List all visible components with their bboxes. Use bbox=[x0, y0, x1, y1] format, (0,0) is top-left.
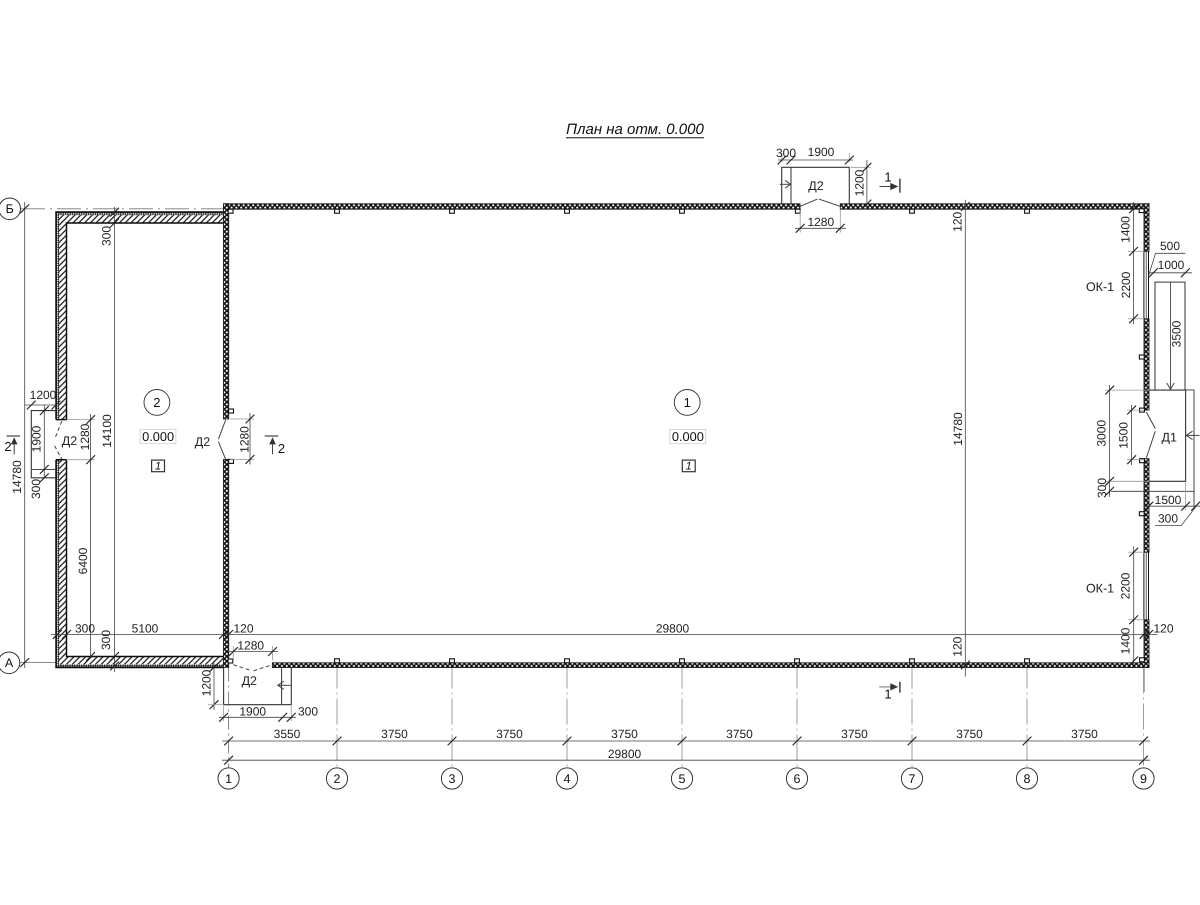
svg-text:120: 120 bbox=[1153, 621, 1173, 635]
svg-text:ОК-1: ОК-1 bbox=[1086, 280, 1114, 294]
svg-text:Д2: Д2 bbox=[195, 435, 210, 449]
svg-text:1000: 1000 bbox=[1158, 258, 1185, 272]
svg-text:0.000: 0.000 bbox=[142, 429, 174, 444]
svg-text:120: 120 bbox=[233, 621, 253, 635]
svg-text:3: 3 bbox=[449, 772, 456, 786]
svg-text:5100: 5100 bbox=[132, 621, 159, 635]
svg-text:1: 1 bbox=[225, 772, 232, 786]
svg-text:Д1: Д1 bbox=[1161, 431, 1176, 445]
svg-text:120: 120 bbox=[951, 636, 965, 656]
svg-text:8: 8 bbox=[1024, 772, 1031, 786]
svg-text:0.000: 0.000 bbox=[672, 429, 704, 444]
svg-text:3750: 3750 bbox=[496, 727, 523, 741]
svg-text:500: 500 bbox=[1160, 239, 1180, 253]
svg-text:1: 1 bbox=[884, 170, 891, 185]
svg-text:14780: 14780 bbox=[951, 412, 965, 446]
svg-text:3750: 3750 bbox=[956, 727, 983, 741]
svg-text:1280: 1280 bbox=[237, 639, 264, 653]
svg-text:14100: 14100 bbox=[100, 414, 114, 448]
svg-text:5: 5 bbox=[679, 772, 686, 786]
svg-text:29800: 29800 bbox=[608, 747, 642, 761]
svg-text:6400: 6400 bbox=[76, 547, 90, 574]
svg-text:2: 2 bbox=[334, 772, 341, 786]
svg-text:1280: 1280 bbox=[807, 215, 834, 229]
svg-text:300: 300 bbox=[99, 630, 113, 650]
svg-text:2200: 2200 bbox=[1119, 271, 1133, 298]
svg-text:1900: 1900 bbox=[808, 145, 835, 159]
svg-text:300: 300 bbox=[75, 621, 95, 635]
svg-text:1400: 1400 bbox=[1119, 216, 1133, 243]
svg-text:300: 300 bbox=[298, 705, 318, 719]
svg-text:1280: 1280 bbox=[78, 423, 92, 450]
svg-text:9: 9 bbox=[1140, 772, 1147, 786]
svg-text:А: А bbox=[5, 656, 14, 670]
svg-text:300: 300 bbox=[776, 146, 796, 160]
svg-text:3000: 3000 bbox=[1095, 420, 1109, 447]
svg-text:1200: 1200 bbox=[200, 669, 214, 696]
svg-text:План на отм. 0.000: План на отм. 0.000 bbox=[566, 121, 704, 138]
svg-text:6: 6 bbox=[794, 772, 801, 786]
svg-text:120: 120 bbox=[951, 211, 965, 231]
svg-text:Д2: Д2 bbox=[808, 179, 823, 193]
svg-text:3750: 3750 bbox=[381, 727, 408, 741]
svg-text:3750: 3750 bbox=[726, 727, 753, 741]
svg-text:300: 300 bbox=[1158, 512, 1178, 526]
svg-text:3750: 3750 bbox=[841, 727, 868, 741]
svg-text:1500: 1500 bbox=[1117, 422, 1131, 449]
svg-text:1900: 1900 bbox=[239, 705, 266, 719]
svg-text:Б: Б bbox=[6, 202, 14, 216]
svg-text:1200: 1200 bbox=[30, 388, 57, 402]
svg-text:300: 300 bbox=[1095, 478, 1109, 498]
svg-text:300: 300 bbox=[100, 226, 114, 246]
svg-text:3750: 3750 bbox=[1071, 727, 1098, 741]
svg-text:Д2: Д2 bbox=[242, 674, 257, 688]
svg-text:1200: 1200 bbox=[853, 169, 867, 196]
svg-text:1: 1 bbox=[686, 461, 692, 473]
svg-text:2: 2 bbox=[153, 395, 160, 410]
svg-text:ОК-1: ОК-1 bbox=[1086, 582, 1114, 596]
svg-text:2: 2 bbox=[4, 439, 11, 454]
svg-text:1500: 1500 bbox=[1155, 493, 1182, 507]
svg-text:1400: 1400 bbox=[1119, 627, 1133, 654]
svg-text:7: 7 bbox=[909, 772, 916, 786]
svg-text:4: 4 bbox=[564, 772, 571, 786]
svg-text:1: 1 bbox=[684, 395, 691, 410]
svg-text:300: 300 bbox=[29, 479, 43, 499]
svg-text:3750: 3750 bbox=[611, 727, 638, 741]
svg-text:2: 2 bbox=[278, 441, 285, 456]
svg-text:14780: 14780 bbox=[10, 460, 24, 494]
svg-text:29800: 29800 bbox=[656, 621, 690, 635]
svg-text:1: 1 bbox=[884, 687, 891, 702]
svg-text:3550: 3550 bbox=[274, 727, 301, 741]
svg-text:1900: 1900 bbox=[30, 425, 44, 452]
svg-text:2200: 2200 bbox=[1119, 572, 1133, 599]
svg-text:1: 1 bbox=[155, 461, 161, 473]
svg-text:3500: 3500 bbox=[1169, 320, 1183, 347]
svg-text:1280: 1280 bbox=[237, 426, 251, 453]
svg-text:Д2: Д2 bbox=[62, 434, 77, 448]
